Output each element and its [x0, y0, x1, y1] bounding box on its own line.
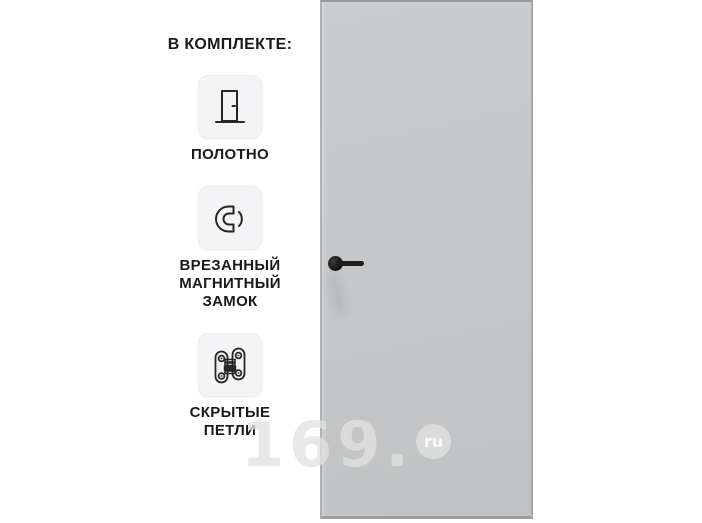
door-photo — [320, 0, 533, 519]
door-handle-shadow — [328, 271, 346, 314]
door-leaf-icon-card — [198, 75, 262, 139]
hinge-icon — [208, 343, 252, 387]
door-icon — [208, 85, 252, 129]
feature-hidden-hinges: СКРЫТЫЕ ПЕТЛИ — [190, 333, 271, 440]
product-card-image: В КОМПЛЕКТЕ: ПОЛОТНО — [0, 0, 702, 523]
feature-magnetic-lock: ВРЕЗАННЫЙ МАГНИТНЫЙ ЗАМОК — [179, 186, 281, 311]
feature-label-door-leaf: ПОЛОТНО — [191, 146, 269, 164]
feature-label-hidden-hinges: СКРЫТЫЕ ПЕТЛИ — [190, 404, 271, 440]
feature-label-magnetic-lock: ВРЕЗАННЫЙ МАГНИТНЫЙ ЗАМОК — [179, 257, 281, 311]
included-title: В КОМПЛЕКТЕ: — [168, 36, 292, 54]
included-panel: В КОМПЛЕКТЕ: ПОЛОТНО — [169, 36, 291, 462]
magnet-icon-card — [198, 186, 262, 250]
feature-door-leaf: ПОЛОТНО — [191, 75, 269, 164]
door-handle-lever — [336, 261, 364, 266]
hinge-icon-card — [198, 333, 262, 397]
magnet-icon — [208, 196, 252, 240]
